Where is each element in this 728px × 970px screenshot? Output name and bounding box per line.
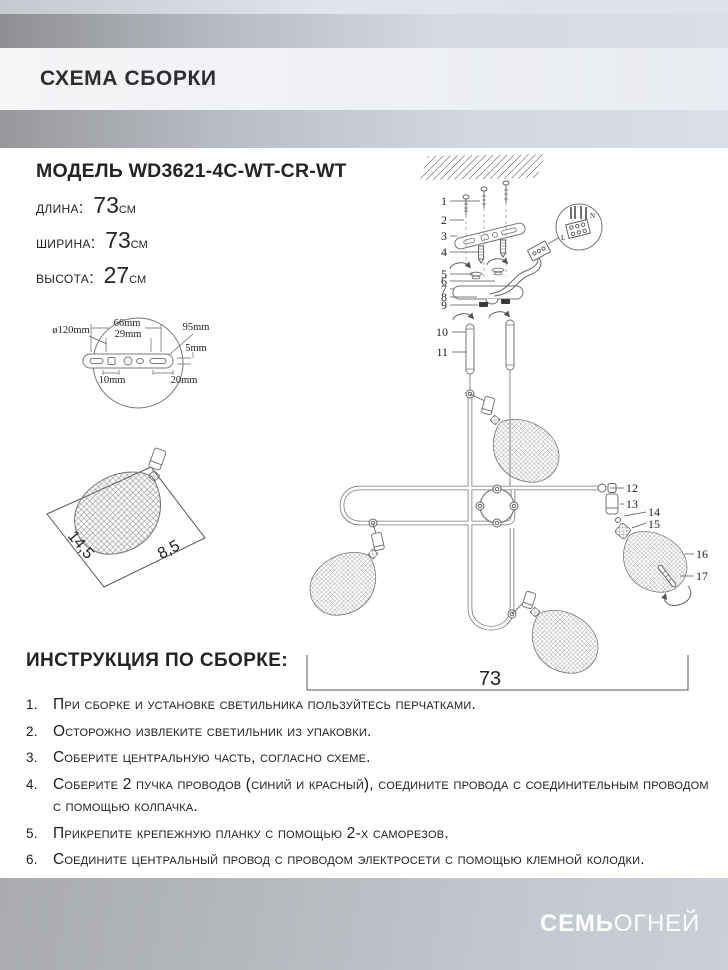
- instruction-item: 3.Соберите центральную часть, согласно с…: [26, 747, 718, 770]
- fixture-tubes: [342, 391, 600, 628]
- plate-dim-20: 20mm: [171, 375, 198, 386]
- mounting-screws: [463, 181, 509, 215]
- washers: [470, 268, 504, 279]
- brand-logo: СЕМЬОГНЕЙ: [540, 912, 728, 936]
- mounting-bar: [454, 222, 527, 250]
- part-label-13: 13: [626, 497, 638, 511]
- wire-label-live: L: [561, 234, 565, 242]
- instructions-list: 1.При сборке и установке светильника пол…: [26, 694, 718, 872]
- plate-dim-diameter: ø120mm: [52, 325, 89, 336]
- shade-holder-small: [148, 448, 166, 471]
- part-label-4: 4: [441, 245, 447, 259]
- instruction-item: 1.При сборке и установке светильника пол…: [26, 694, 718, 717]
- center-hub: [480, 489, 514, 523]
- footer: СЕМЬОГНЕЙ: [0, 878, 728, 970]
- shade-dimensions-diagram: 14,5 8,5: [33, 430, 238, 625]
- plate-dim-66: 66mm: [114, 318, 141, 329]
- plate-dim-29: 29mm: [115, 329, 142, 340]
- part-label-3: 3: [441, 229, 447, 243]
- part-label-16: 16: [696, 547, 708, 561]
- header-strip-top: [0, 0, 728, 14]
- instruction-item: 2.Осторожно извлеките светильник из упак…: [26, 721, 718, 744]
- plate-dim-95: 95mm: [183, 322, 210, 333]
- header-strip-gradient: [0, 14, 728, 48]
- assembly-diagram: L N: [290, 148, 728, 704]
- header-title-band: СХЕМА СБОРКИ: [0, 48, 728, 110]
- down-rods: [466, 320, 514, 374]
- instructions: ИНСТРУКЦИЯ ПО СБОРКЕ: 1.При сборке и уст…: [26, 650, 718, 876]
- part-label-1: 1: [441, 194, 447, 208]
- plate-dim-10: 10mm: [99, 375, 126, 386]
- part-label-9: 9: [441, 298, 447, 312]
- header: СХЕМА СБОРКИ: [0, 0, 728, 148]
- instruction-item: 4.Соберите 2 пучка проводов (синий и кра…: [26, 774, 718, 819]
- assembly-sheet: СХЕМА СБОРКИ МОДЕЛЬ WD3621-4C-WT-CR-WT д…: [0, 0, 728, 970]
- lamp-top: [470, 394, 559, 482]
- wiring-detail-circle: L N: [556, 204, 602, 250]
- page-title: СХЕМА СБОРКИ: [0, 67, 217, 91]
- part-label-12: 12: [626, 481, 638, 495]
- plate-dim-5: 5mm: [185, 343, 207, 354]
- ceiling-hatch: [420, 154, 545, 180]
- shade-dim-short: 8,5: [155, 537, 183, 562]
- part-label-2: 2: [441, 213, 447, 227]
- mounting-plate-diagram: ø120mm 66mm 29mm 95mm 5mm 10mm 20mm: [33, 312, 228, 420]
- part-label-10: 10: [436, 325, 448, 339]
- part-label-15: 15: [648, 517, 660, 531]
- part-label-11: 11: [436, 345, 448, 359]
- instruction-item: 6.Соедините центральный провод с проводо…: [26, 849, 718, 872]
- part-label-17: 17: [696, 569, 708, 583]
- wire-label-neutral: N: [590, 212, 595, 220]
- instructions-title: ИНСТРУКЦИЯ ПО СБОРКЕ:: [26, 650, 718, 672]
- header-strip-bottom: [0, 110, 728, 148]
- lamp-left: [310, 523, 385, 615]
- instruction-item: 5.Прикрепите крепежную планку с помощью …: [26, 823, 718, 846]
- exploded-parts: [598, 484, 691, 606]
- terminal-block: [527, 241, 550, 261]
